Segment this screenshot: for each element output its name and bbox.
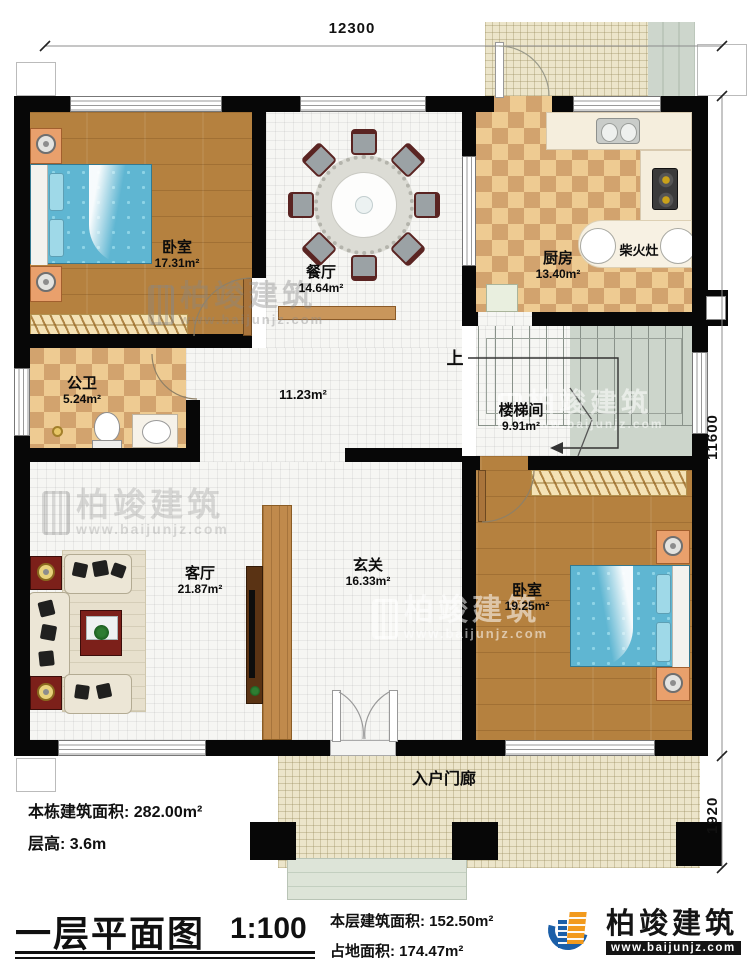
lamp-icon: [37, 563, 55, 581]
sofa-left: [28, 592, 70, 678]
wardrobe: [531, 470, 687, 496]
stool: [580, 228, 616, 264]
dim-right-lower: 1920: [704, 778, 721, 834]
room-label-foyer: 玄关 16.33m²: [346, 558, 391, 588]
room-area: 13.40m²: [536, 267, 581, 281]
window: [300, 96, 426, 112]
sofa-top: [64, 554, 132, 594]
corner-marker: [697, 44, 747, 96]
window: [573, 96, 661, 112]
bed-pillow: [49, 219, 64, 257]
throw-pillow: [40, 624, 57, 641]
bedroom2-door-leaf: [478, 470, 486, 522]
lamp-icon: [663, 673, 683, 693]
room-label-hallway: 11.23m²: [279, 388, 327, 402]
bed-pillow: [49, 173, 64, 211]
kitchen-cabinet: [486, 284, 518, 312]
dining-chair: [351, 129, 377, 155]
room-name: 玄关: [346, 558, 391, 574]
tv-feature-wall: [262, 505, 292, 740]
room-name: 客厅: [178, 566, 223, 582]
room-name: 卧室: [155, 240, 200, 256]
plan-title: 一层平面图: [15, 905, 205, 957]
flue-inner: [706, 296, 726, 320]
throw-pillow: [74, 684, 90, 700]
bedroom1-door-leaf: [243, 278, 252, 336]
label-stairs-up: 上: [447, 344, 464, 369]
kitchen-door-passage: [494, 96, 552, 112]
entry-door-leaf: [389, 690, 398, 742]
wall-hall-foyer: [345, 448, 462, 462]
room-label-kitchen: 厨房 13.40m²: [536, 251, 581, 281]
porch-column: [250, 822, 296, 860]
window: [70, 96, 222, 112]
lamp-icon: [36, 134, 56, 154]
sink-basin: [620, 123, 637, 142]
title-underline: [15, 951, 315, 954]
room-area: 19.25m²: [505, 599, 550, 613]
room-name: 楼梯间: [498, 403, 543, 419]
corner-marker: [16, 758, 56, 792]
wall-bedroom1-bottom: [14, 334, 252, 348]
basin: [142, 420, 171, 444]
logo-building-blue: [558, 920, 567, 948]
bed-headboard: [672, 566, 689, 668]
back-door-leaf: [495, 42, 504, 98]
room-name: 餐厅: [299, 265, 344, 281]
entry-steps: [287, 858, 467, 900]
dim-right-upper: 11600: [704, 390, 721, 460]
room-label-entry-porch: 入户门廊: [412, 772, 476, 788]
room-name: 入户门廊: [412, 772, 476, 788]
brand-logo-icon: [548, 904, 598, 960]
window: [58, 740, 206, 756]
dining-table-center: [355, 196, 373, 214]
back-porch-steps: [648, 22, 695, 96]
bed: [570, 565, 690, 667]
entry-threshold: [330, 740, 396, 756]
note-floor-height: 层高: 3.6m: [28, 830, 106, 854]
kitchen-sink: [596, 118, 640, 144]
dim-top: 12300: [312, 20, 392, 37]
wall-bath-bottom: [14, 448, 200, 462]
throw-pillow: [96, 683, 113, 700]
room-label-living: 客厅 21.87m²: [178, 566, 223, 596]
dining-chair: [414, 192, 440, 218]
brand-logo: 柏竣建筑 www.baijunjz.com: [548, 902, 744, 962]
throw-pillow: [110, 562, 127, 579]
pass-window: [462, 156, 476, 266]
bed-pillow: [656, 574, 671, 614]
sink-basin: [601, 123, 618, 142]
hallway-floor: [186, 348, 462, 462]
sideboard: [278, 306, 396, 320]
sofa-bottom: [64, 674, 132, 714]
entry-door-leaf: [332, 690, 341, 742]
fixture-name: 柴火灶: [619, 243, 658, 258]
room-area: 11.23m²: [279, 388, 327, 402]
corner-marker: [16, 62, 56, 96]
tv-screen: [249, 590, 255, 678]
wall-bedroom1-dining: [252, 96, 266, 278]
dining-chair: [288, 192, 314, 218]
title-underline-2: [15, 957, 315, 959]
room-label-stairwell: 楼梯间 9.91m²: [498, 403, 543, 433]
bed-sheet: [89, 165, 133, 265]
room-area: 16.33m²: [346, 574, 391, 588]
brand-website: www.baijunjz.com: [606, 941, 741, 955]
coffee-table: [80, 610, 122, 656]
porch-column: [452, 822, 498, 860]
lamp-icon: [37, 683, 55, 701]
room-area: 9.91m²: [498, 419, 543, 433]
room-name: 卧室: [505, 583, 550, 599]
bed-pillow: [656, 622, 671, 662]
note-total-area: 本栋建筑面积: 282.00m²: [28, 798, 202, 822]
kitchen-stove: [652, 168, 678, 210]
room-area: 14.64m²: [299, 281, 344, 295]
room-label-bedroom2: 卧室 19.25m²: [505, 583, 550, 613]
plant-icon: [250, 686, 260, 696]
window: [14, 368, 30, 436]
room-label-bathroom: 公卫 5.24m²: [63, 376, 101, 406]
room-label-dining: 餐厅 14.64m²: [299, 265, 344, 295]
room-area: 21.87m²: [178, 582, 223, 596]
floorplan-canvas: 12300 11600 1920 卧室 17.31m² 餐厅 14.64m² 厨…: [0, 0, 750, 970]
bath-sink: [132, 414, 178, 448]
throw-pillow: [37, 599, 55, 617]
up-label: 上: [447, 349, 464, 368]
door-opening: [480, 456, 528, 470]
wall-dining-kitchen-upper: [462, 96, 476, 156]
room-label-bedroom1: 卧室 17.31m²: [155, 240, 200, 270]
floor-drain: [52, 426, 63, 437]
toilet: [94, 412, 120, 442]
room-name: 厨房: [536, 251, 581, 267]
bed-sheet: [589, 566, 633, 668]
throw-pillow: [38, 650, 54, 666]
throw-pillow: [72, 562, 89, 579]
brand-name: 柏竣建筑: [606, 910, 741, 939]
lamp-icon: [36, 272, 56, 292]
land-area-text: 占地面积: 174.47m²: [330, 940, 463, 961]
door-opening: [478, 312, 532, 326]
room-area: 5.24m²: [63, 392, 101, 406]
dining-chair: [351, 255, 377, 281]
window: [505, 740, 655, 756]
bed: [30, 164, 152, 264]
bed-headboard: [31, 165, 48, 265]
logo-building-orange: [566, 912, 586, 944]
wardrobe: [30, 314, 188, 336]
plan-scale: 1:100: [230, 912, 307, 946]
throw-pillow: [92, 560, 109, 577]
stool: [660, 228, 696, 264]
lamp-icon: [663, 536, 683, 556]
plant-icon: [94, 625, 109, 640]
room-area: 17.31m²: [155, 256, 200, 270]
wall-foyer-bedroom2: [462, 456, 476, 756]
label-wood-stove: 柴火灶: [619, 240, 658, 260]
room-name: 公卫: [63, 376, 101, 392]
floor-area-text: 本层建筑面积: 152.50m²: [330, 910, 493, 931]
